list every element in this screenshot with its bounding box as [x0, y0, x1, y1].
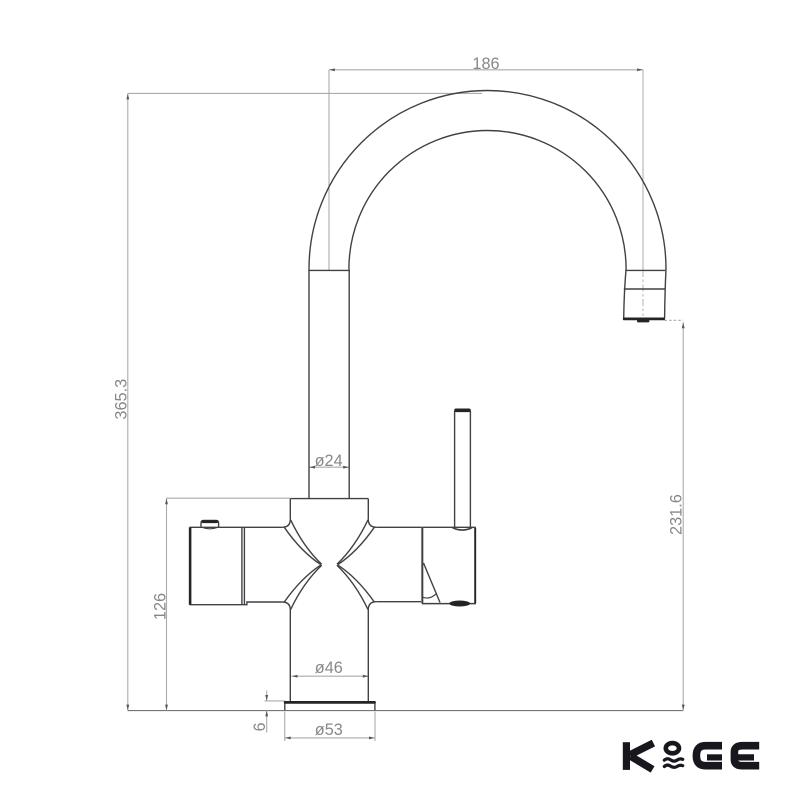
svg-text:ø53: ø53	[315, 721, 343, 739]
svg-text:ø24: ø24	[315, 452, 343, 470]
svg-text:ø46: ø46	[315, 659, 343, 677]
svg-text:231.6: 231.6	[668, 494, 686, 535]
svg-text:126: 126	[151, 593, 169, 620]
svg-text:6: 6	[251, 722, 269, 731]
svg-text:186: 186	[472, 55, 499, 73]
svg-text:365.3: 365.3	[113, 379, 131, 420]
